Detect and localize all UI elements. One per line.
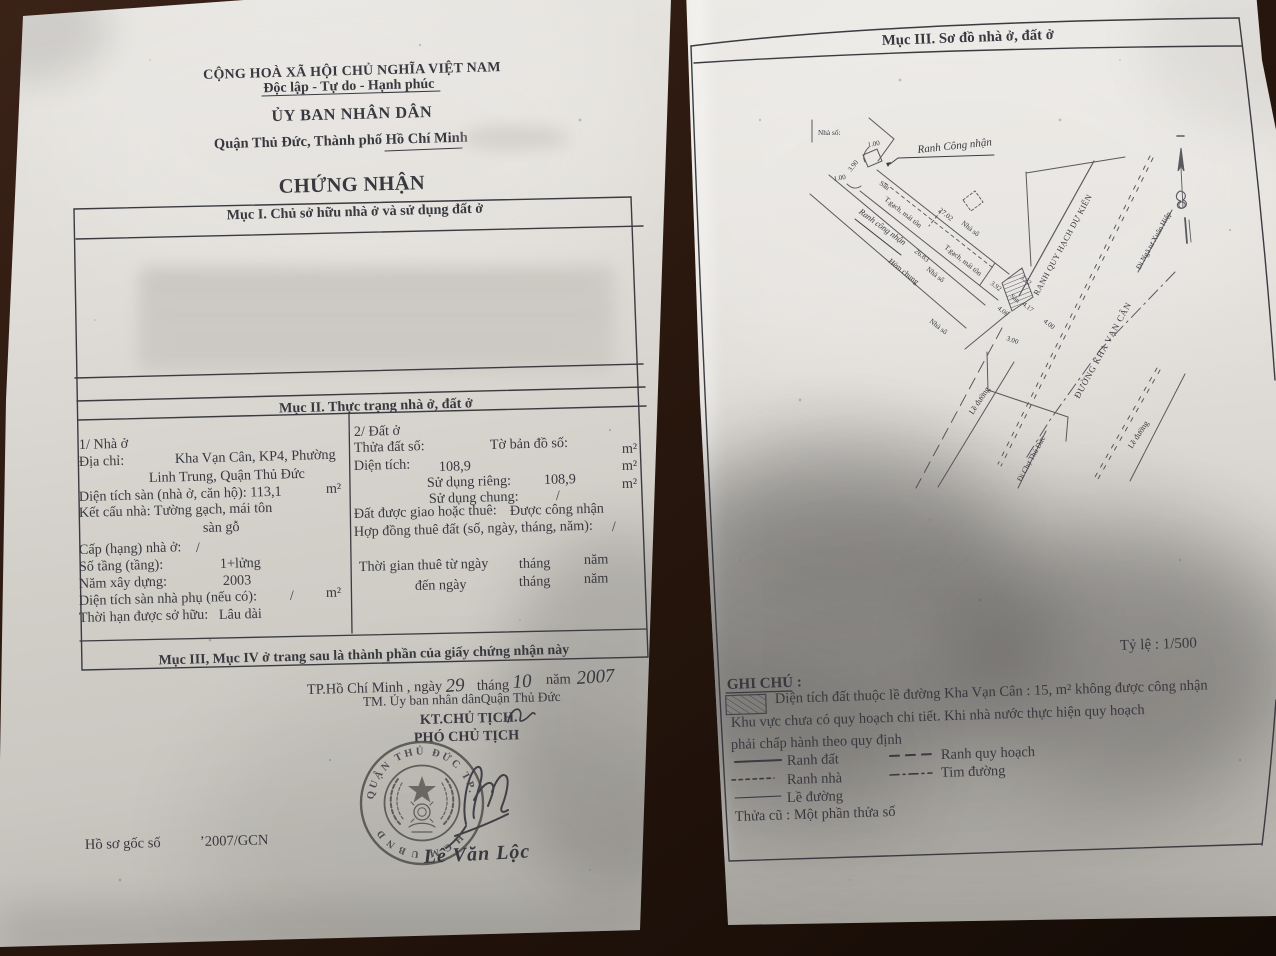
- svg-text:Thửa đất số:: Thửa đất số:: [354, 438, 425, 456]
- svg-text:Tờ bản đồ số:: Tờ bản đồ số:: [490, 435, 568, 453]
- svg-text:2/ Đất ở: 2/ Đất ở: [354, 423, 401, 440]
- svg-text:m²: m²: [622, 458, 638, 474]
- svg-text:Ranh đất: Ranh đất: [787, 751, 839, 769]
- svg-text:sàn gỗ: sàn gỗ: [203, 519, 240, 536]
- svg-text:108,9: 108,9: [439, 458, 471, 475]
- svg-text:năm: năm: [546, 671, 572, 688]
- svg-text:KT.CHỦ TỊCH.: KT.CHỦ TỊCH.: [420, 708, 518, 728]
- svg-text:m²: m²: [622, 476, 638, 492]
- svg-text:/: /: [290, 588, 294, 604]
- svg-text:2007: 2007: [576, 665, 617, 689]
- svg-text:Tim đường: Tim đường: [941, 763, 1006, 781]
- svg-text:Năm xây dựng:: Năm xây dựng:: [79, 574, 167, 592]
- svg-text:năm: năm: [584, 570, 609, 587]
- svg-text:1+lửng: 1+lửng: [220, 555, 261, 572]
- svg-text:đến ngày: đến ngày: [415, 577, 468, 594]
- svg-text:tháng: tháng: [519, 573, 551, 590]
- svg-text:Thời hạn được sở hữu:: Thời hạn được sở hữu:: [79, 607, 209, 626]
- svg-text:năm: năm: [584, 551, 609, 568]
- svg-text:tháng: tháng: [519, 555, 551, 572]
- svg-text:Địa chỉ:: Địa chỉ:: [79, 453, 125, 470]
- svg-text:Hồ sơ gốc số: Hồ sơ gốc số: [85, 835, 162, 853]
- svg-text:m²: m²: [622, 441, 638, 457]
- svg-text:108,9: 108,9: [544, 471, 576, 488]
- svg-text:Tỷ lệ : 1/500: Tỷ lệ : 1/500: [1120, 635, 1198, 654]
- svg-text:2003: 2003: [223, 572, 252, 589]
- svg-text:Ranh nhà: Ranh nhà: [787, 770, 843, 788]
- svg-text:Nhà số:: Nhà số:: [818, 128, 841, 137]
- svg-text:1/ Nhà ở: 1/ Nhà ở: [79, 436, 129, 453]
- svg-text:/: /: [196, 540, 200, 556]
- svg-text:Lâu dài: Lâu dài: [219, 606, 262, 623]
- svg-text:Ranh quy hoạch: Ranh quy hoạch: [941, 744, 1036, 763]
- svg-text:Thời gian thuê từ ngày: Thời gian thuê từ ngày: [359, 556, 490, 575]
- svg-text:Cấp (hạng) nhà ở:: Cấp (hạng) nhà ở:: [79, 539, 182, 558]
- svg-text:Diện tích:: Diện tích:: [354, 457, 411, 474]
- svg-text:/: /: [612, 519, 616, 535]
- svg-text:Được công nhận: Được công nhận: [510, 501, 604, 519]
- svg-text:Số tầng (tầng):: Số tầng (tầng):: [79, 557, 164, 575]
- svg-text:Lề đường: Lề đường: [787, 788, 844, 806]
- svg-text:m²: m²: [326, 481, 342, 497]
- svg-text:’2007/GCN: ’2007/GCN: [200, 832, 269, 850]
- svg-text:m²: m²: [326, 585, 342, 601]
